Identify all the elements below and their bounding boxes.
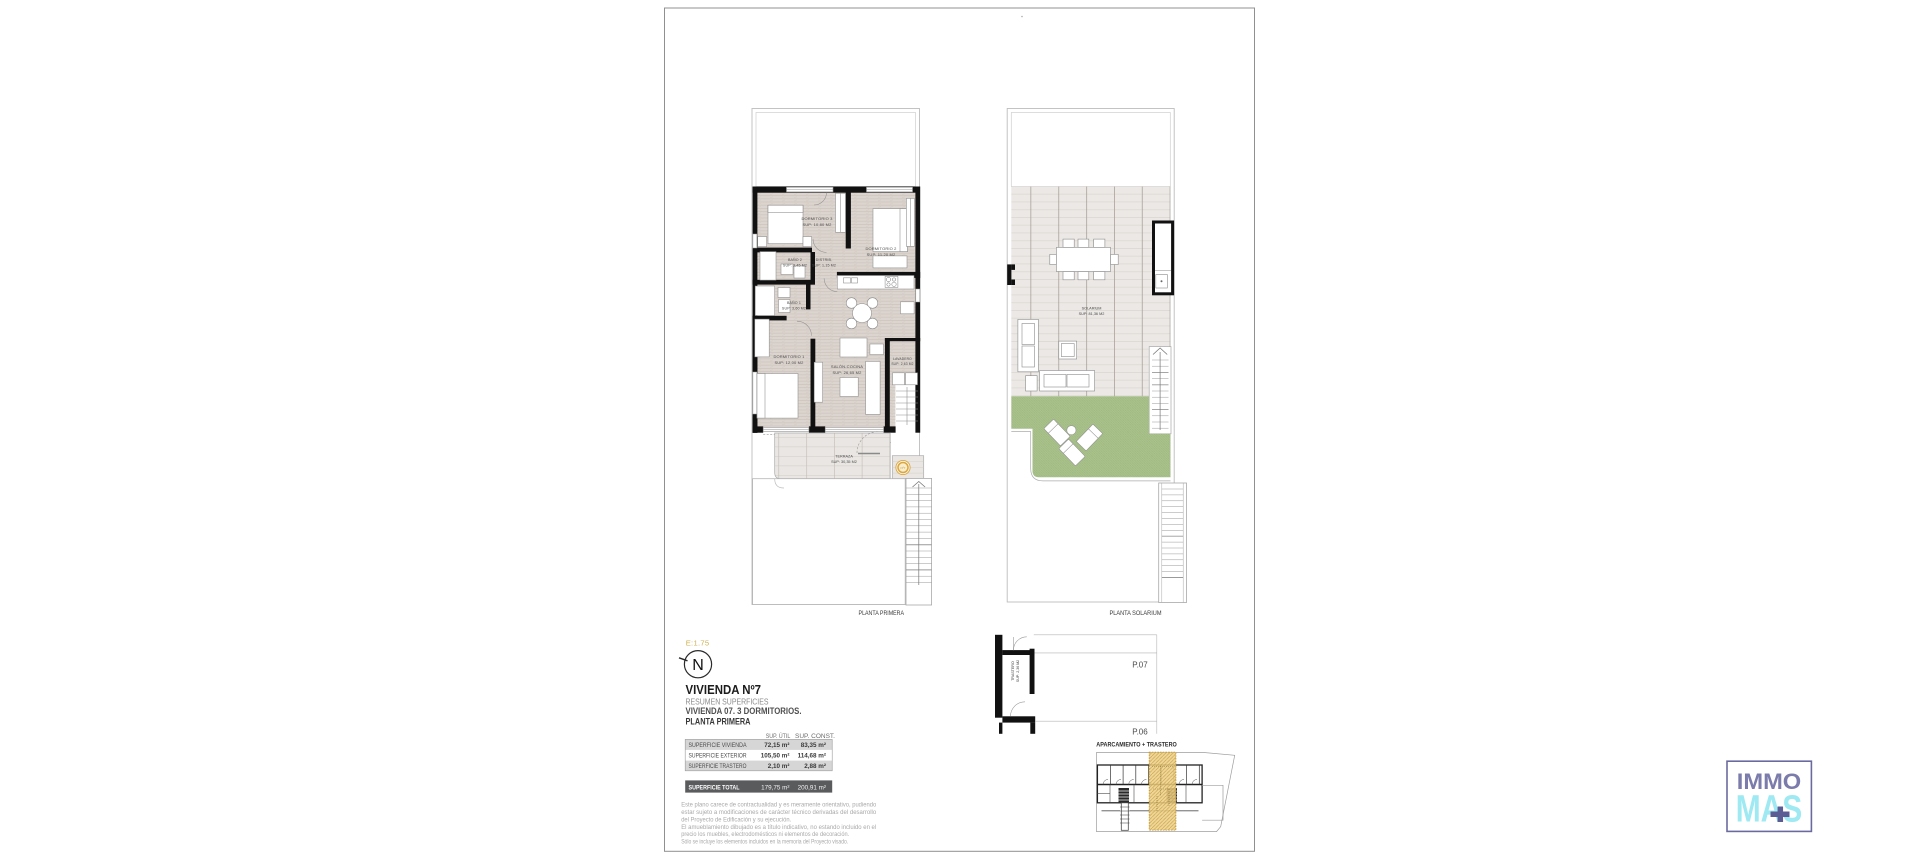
svg-text:72,15 m²: 72,15 m²	[764, 742, 789, 749]
svg-text:BAÑO 1: BAÑO 1	[787, 300, 801, 305]
svg-text:SUPERFICIE EXTERIOR: SUPERFICIE EXTERIOR	[689, 753, 747, 760]
svg-text:2,10 m²: 2,10 m²	[768, 763, 790, 770]
svg-text:TERRAZA: TERRAZA	[835, 455, 853, 459]
svg-text:BAÑO 2: BAÑO 2	[788, 257, 802, 262]
svg-text:SUP: 2,36 M2: SUP: 2,36 M2	[1016, 660, 1020, 682]
svg-text:SUP: 10.80 M2: SUP: 10.80 M2	[802, 222, 832, 227]
svg-text:E:1.75: E:1.75	[686, 639, 710, 648]
svg-text:MAS: MAS	[1736, 788, 1803, 830]
svg-text:SUP. ÚTIL: SUP. ÚTIL	[766, 733, 791, 740]
svg-text:precio los muebles, electrodom: precio los muebles, electrodomésticos ni…	[681, 831, 849, 838]
svg-text:estar sujeto a modificaciones: estar sujeto a modificaciones de carácte…	[681, 809, 876, 816]
svg-text:SUP: 26,65 M2: SUP: 26,65 M2	[832, 370, 862, 375]
svg-text:SUP: 81,36 M2: SUP: 81,36 M2	[1079, 312, 1105, 316]
svg-text:Este plano carece de contractu: Este plano carece de contractualidad y e…	[681, 802, 876, 809]
svg-text:SUP: 3,45 M2: SUP: 3,45 M2	[783, 264, 807, 268]
svg-text:200,91 m²: 200,91 m²	[798, 784, 826, 791]
svg-text:DORMITORIO 1: DORMITORIO 1	[773, 354, 805, 359]
svg-text:SUP: 12,00 M2: SUP: 12,00 M2	[774, 360, 804, 365]
svg-text:Sólo se incluye los elementos: Sólo se incluye los elementos incluidos …	[681, 839, 848, 846]
svg-text:2,88 m²: 2,88 m²	[804, 763, 826, 770]
svg-text:DORMITORIO 3: DORMITORIO 3	[801, 216, 833, 221]
svg-text:Nº7: Nº7	[901, 466, 906, 470]
svg-text:SUPERFICIE VIVIENDA: SUPERFICIE VIVIENDA	[689, 742, 748, 749]
svg-text:SUP: 2,63 M2: SUP: 2,63 M2	[891, 362, 913, 366]
svg-text:179,75 m²: 179,75 m²	[761, 784, 789, 791]
svg-text:SALÓN-COCINA: SALÓN-COCINA	[831, 364, 863, 369]
svg-text:105,50 m²: 105,50 m²	[761, 753, 790, 760]
svg-text:114,68 m²: 114,68 m²	[798, 753, 826, 760]
svg-text:SUP: 1,15 M2: SUP: 1,15 M2	[812, 264, 836, 268]
svg-text:SUP: 30,35 M2: SUP: 30,35 M2	[831, 460, 857, 464]
svg-text:DORMITORIO 2: DORMITORIO 2	[865, 246, 897, 251]
svg-text:PLANTA PRIMERA: PLANTA PRIMERA	[859, 610, 905, 617]
svg-text:VIVIENDA Nº7: VIVIENDA Nº7	[686, 682, 762, 697]
svg-text:SUP: 3,60 M2: SUP: 3,60 M2	[782, 307, 806, 311]
svg-text:DISTRIB.: DISTRIB.	[816, 258, 832, 262]
svg-text:APARCAMIENTO + TRASTERO: APARCAMIENTO + TRASTERO	[1096, 742, 1177, 749]
svg-text:VIVIENDA 07. 3 DORMITORIOS.: VIVIENDA 07. 3 DORMITORIOS.	[686, 706, 802, 716]
svg-text:P.06: P.06	[1132, 728, 1148, 737]
svg-text:LAVADERO: LAVADERO	[893, 357, 912, 361]
svg-text:P.07: P.07	[1132, 661, 1148, 670]
svg-text:PLANTA PRIMERA: PLANTA PRIMERA	[686, 717, 751, 727]
svg-text:83,35 m²: 83,35 m²	[801, 742, 826, 749]
svg-text:del Proyecto de Edificación y: del Proyecto de Edificación y su ejecuci…	[681, 816, 791, 823]
svg-text:SUPERFICIE TOTAL: SUPERFICIE TOTAL	[689, 784, 740, 791]
svg-text:RESUMEN SUPERFICIES: RESUMEN SUPERFICIES	[686, 696, 769, 706]
svg-text:SUP: 11.20 M2: SUP: 11.20 M2	[867, 252, 896, 257]
svg-text:SOLARIUM: SOLARIUM	[1082, 307, 1102, 311]
svg-text:TRASTERO: TRASTERO	[1011, 661, 1015, 681]
svg-text:PLANTA SOLARIUM: PLANTA SOLARIUM	[1110, 610, 1162, 617]
svg-text:N: N	[692, 657, 704, 674]
svg-text:SUPERFICIE TRASTERO: SUPERFICIE TRASTERO	[689, 763, 747, 770]
svg-text:SUP. CONST.: SUP. CONST.	[795, 734, 835, 740]
svg-text:El amueblamiento dibujado es a: El amueblamiento dibujado es a título in…	[681, 824, 876, 831]
